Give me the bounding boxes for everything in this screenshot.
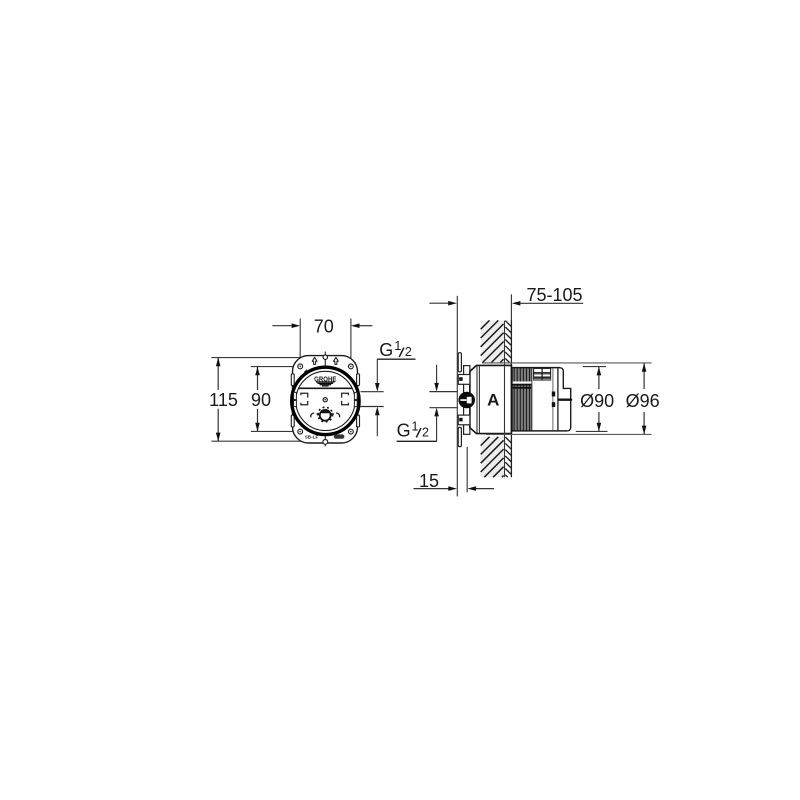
svg-text:2: 2 (405, 345, 412, 359)
svg-text:70: 70 (314, 316, 334, 336)
svg-text:75-105: 75-105 (526, 285, 582, 305)
svg-text:1: 1 (412, 420, 419, 434)
svg-text:1: 1 (394, 339, 401, 353)
svg-text:G: G (379, 340, 393, 360)
svg-text:Ø96: Ø96 (626, 391, 660, 411)
svg-text:SB-LF: SB-LF (305, 434, 319, 439)
svg-text:Ø90: Ø90 (580, 391, 614, 411)
svg-text:A: A (487, 391, 499, 410)
svg-text:90: 90 (251, 390, 271, 410)
svg-text:115: 115 (209, 390, 238, 410)
svg-text:G: G (397, 421, 411, 441)
svg-text:2: 2 (422, 426, 429, 440)
svg-text:15: 15 (419, 471, 439, 491)
